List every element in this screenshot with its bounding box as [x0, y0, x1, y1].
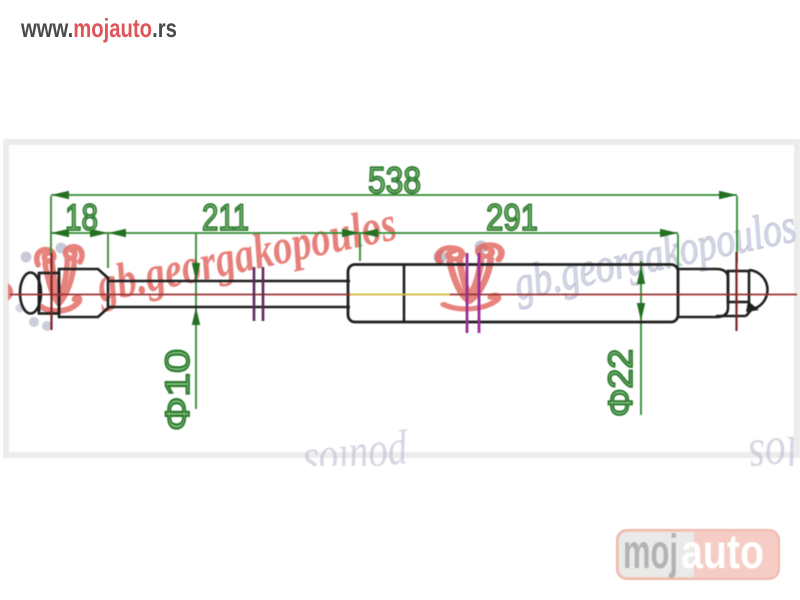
- svg-text:18: 18: [65, 197, 98, 238]
- svg-text:moj: moj: [623, 526, 678, 579]
- svg-text:auto: auto: [681, 526, 764, 579]
- svg-text:291: 291: [486, 197, 538, 238]
- svg-text:538: 538: [368, 160, 421, 201]
- svg-text:Φ22: Φ22: [602, 349, 640, 417]
- svg-text:poulos: poulos: [301, 429, 413, 496]
- svg-text:oulos: oulos: [746, 420, 800, 488]
- svg-text:211: 211: [202, 197, 249, 238]
- svg-text:Φ10: Φ10: [159, 349, 197, 431]
